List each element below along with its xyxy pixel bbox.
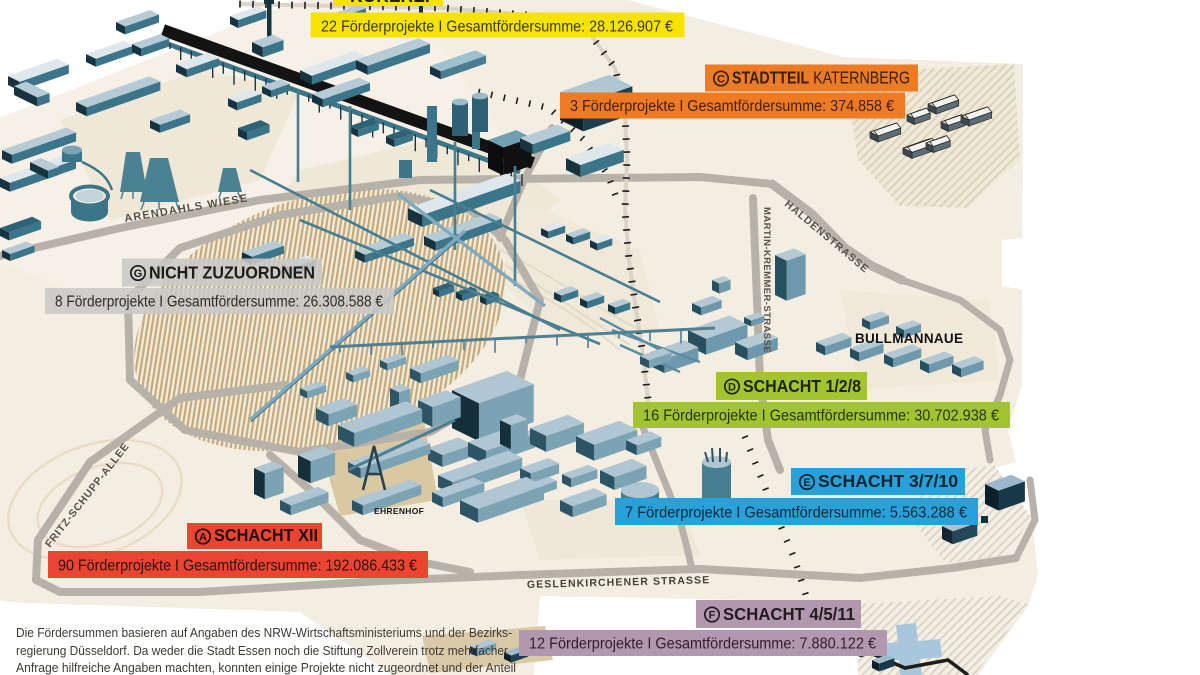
svg-text:16 Förderprojekte I Gesamtför: 16 Förderprojekte I Gesamtfördersumme: 3… <box>643 408 999 425</box>
svg-text:SCHACHT 1/2/8: SCHACHT 1/2/8 <box>743 376 861 396</box>
svg-text:E: E <box>803 477 810 489</box>
svg-text:22 Förderprojekte I Gesamtför: 22 Förderprojekte I Gesamtfördersumme: 2… <box>321 19 673 36</box>
svg-text:F: F <box>709 609 716 621</box>
svg-text:90 Förderprojekte I Gesamtför: 90 Förderprojekte I Gesamtfördersumme: 1… <box>58 558 417 575</box>
svg-text:Die Fördersummen basieren auf: Die Fördersummen basieren auf Angaben de… <box>16 625 512 640</box>
svg-text:SCHACHT 4/5/11: SCHACHT 4/5/11 <box>723 604 855 624</box>
svg-text:3 Förderprojekte I Gesamtförd: 3 Förderprojekte I Gesamtfördersumme: 37… <box>570 98 894 115</box>
svg-text:BULLMANNAUE: BULLMANNAUE <box>855 331 963 346</box>
svg-text:SCHACHT XII: SCHACHT XII <box>214 525 318 545</box>
svg-text:7 Förderprojekte I Gesamtförd: 7 Förderprojekte I Gesamtfördersumme: 5.… <box>625 505 967 522</box>
svg-text:12 Förderprojekte I Gesamtför: 12 Förderprojekte I Gesamtfördersumme: 7… <box>529 636 876 653</box>
svg-text:Anfrage hilfreiche Angaben mac: Anfrage hilfreiche Angaben machten, konn… <box>16 660 516 675</box>
svg-text:EHRENHOF: EHRENHOF <box>374 506 424 516</box>
svg-text:KOKEREI: KOKEREI <box>350 0 430 6</box>
svg-text:C: C <box>717 73 725 85</box>
svg-text:NICHT ZUZUORDNEN: NICHT ZUZUORDNEN <box>149 263 315 283</box>
svg-text:MARTIN-KREMMER-STRASSE: MARTIN-KREMMER-STRASSE <box>761 207 772 353</box>
svg-text:regierung Düsseldorf. Da weder: regierung Düsseldorf. Da weder die Stadt… <box>16 643 509 658</box>
svg-text:8 Förderprojekte I Gesamtförd: 8 Förderprojekte I Gesamtfördersumme: 26… <box>55 294 383 311</box>
svg-text:G: G <box>134 268 143 280</box>
svg-text:STADTTEIL KATERNBERG: STADTTEIL KATERNBERG <box>732 68 910 88</box>
svg-text:D: D <box>728 381 736 393</box>
svg-text:SCHACHT 3/7/10: SCHACHT 3/7/10 <box>818 471 958 491</box>
svg-text:A: A <box>199 531 207 543</box>
